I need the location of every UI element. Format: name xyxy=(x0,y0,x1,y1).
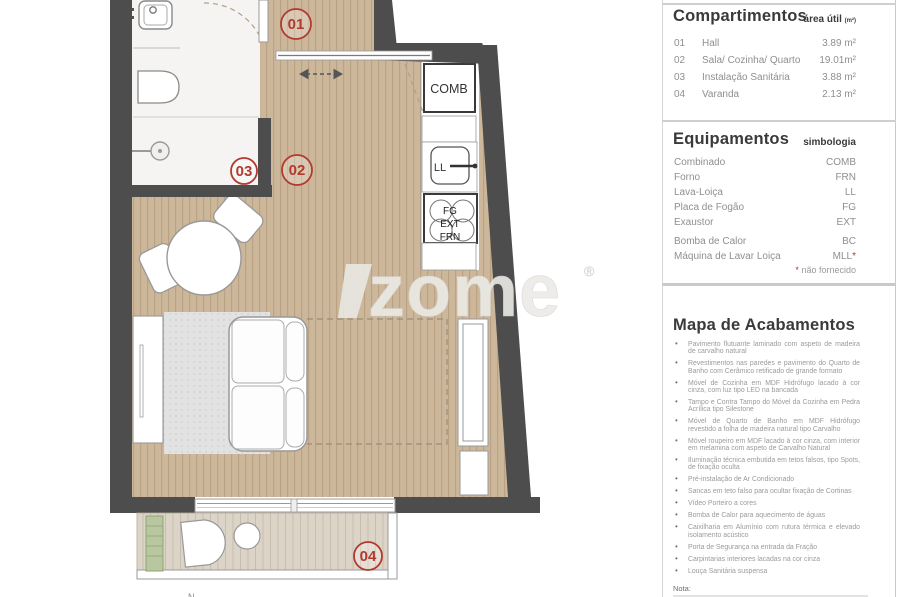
cooktop: FG EXT FRN xyxy=(424,194,477,243)
compartimento-row: 03 Instalação Sanitária 3.88 m² xyxy=(662,72,896,86)
area-util-subtitle: área útil (m²) xyxy=(804,14,856,25)
divider xyxy=(662,120,896,122)
floor-plan-svg: COMB LL FG EXT FRN xyxy=(0,0,660,597)
table-icon xyxy=(167,221,241,295)
acabamento-item: Pavimento flutuante laminado com aspeto … xyxy=(674,341,860,356)
svg-text:01: 01 xyxy=(288,16,305,33)
acabamento-item: Caixilharia em Alumínio com rutura térmi… xyxy=(674,524,860,539)
equipamentos-title: Equipamentos xyxy=(673,130,789,149)
room-badge-03: 03 xyxy=(231,158,257,184)
balcony-railing xyxy=(137,570,397,579)
ll-label: LL xyxy=(434,162,446,174)
divider xyxy=(662,3,896,5)
acabamento-item: Louça Sanitária suspensa xyxy=(674,568,860,575)
acabamentos-title: Mapa de Acabamentos xyxy=(673,316,855,335)
acabamento-item: Móvel roupeiro em MDF lacado à cor cinza… xyxy=(674,438,860,453)
legend-panel: Compartimentos área útil (m²) 01 Hall 3.… xyxy=(662,0,896,597)
frn-label: FRN xyxy=(440,232,461,243)
kitchen-counter: COMB LL FG EXT FRN xyxy=(421,57,479,270)
acabamentos-list: Pavimento flutuante laminado com aspeto … xyxy=(674,341,860,580)
comb-label: COMB xyxy=(430,82,468,96)
balcony-table-icon xyxy=(234,523,260,549)
nota-label: Nota: xyxy=(673,584,691,593)
cutoff-caption: N xyxy=(188,592,195,597)
acabamento-item: Móvel de Quarto de Banho em MDF Hidrófug… xyxy=(674,418,860,433)
equipamento-row: Combinado COMB xyxy=(662,157,896,170)
equipamentos-footnote: * não fornecido xyxy=(795,265,856,275)
acabamento-item: Carpintarias interiores lacadas na cor c… xyxy=(674,556,860,563)
equipamento-row: Placa de Fogão FG xyxy=(662,202,896,215)
room-badge-02: 02 xyxy=(282,155,312,185)
acabamento-item: Pré-instalação de Ar Condicionado xyxy=(674,476,860,483)
equipamento-row: Bomba de Calor BC xyxy=(662,236,896,249)
fg-label: FG xyxy=(443,206,457,217)
acabamento-item: Móvel de Cozinha em MDF Hidrófugo lacado… xyxy=(674,380,860,395)
ext-label: EXT xyxy=(440,219,459,230)
svg-text:02: 02 xyxy=(289,162,306,179)
equipamento-row: Exaustor EXT xyxy=(662,217,896,230)
area-unit: (m²) xyxy=(845,18,856,24)
room-badge-04: 04 xyxy=(354,542,382,570)
floorplan-page: { "colors": { "wall": "#4d4d4d", "wood_f… xyxy=(0,0,900,597)
acabamento-item: Revestimentos nas paredes e pavimento do… xyxy=(674,360,860,375)
plant-box-icon xyxy=(146,516,163,571)
equipamento-row: Forno FRN xyxy=(662,172,896,185)
side-window xyxy=(458,319,488,495)
svg-text:03: 03 xyxy=(236,163,253,180)
acabamento-item: Sancas em teto falso para ocultar fixaçã… xyxy=(674,488,860,495)
simbologia-subtitle: simbologia xyxy=(803,137,856,148)
acabamento-item: Tampo e Contra Tampo do Móvel da Cozinha… xyxy=(674,399,860,414)
wardrobe-handle xyxy=(140,345,143,417)
bottom-window-band xyxy=(195,499,395,512)
acabamento-item: Bomba de Calor para aquecimento de águas xyxy=(674,512,860,519)
svg-text:04: 04 xyxy=(360,548,377,565)
toilet-icon xyxy=(138,71,179,103)
compartimento-row: 02 Sala/ Cozinha/ Quarto 19.01m² xyxy=(662,55,896,69)
room-badge-01: 01 xyxy=(281,9,311,39)
watermark-text: zome xyxy=(368,249,561,332)
sink-ll: LL xyxy=(422,142,477,192)
acabamento-item: Iluminação técnica embutida em tetos fal… xyxy=(674,457,860,472)
equipamento-row: Lava-Loiça LL xyxy=(662,187,896,200)
zome-watermark: zome ® xyxy=(338,249,595,332)
watermark-reg-icon: ® xyxy=(584,263,595,279)
bathroom xyxy=(128,0,260,185)
equipamento-row: Máquina de Lavar Loiça MLL* xyxy=(662,251,896,264)
wardrobe xyxy=(133,316,163,443)
compartimento-row: 04 Varanda 2.13 m² xyxy=(662,89,896,103)
compartimento-row: 01 Hall 3.89 m² xyxy=(662,38,896,52)
divider xyxy=(662,283,896,286)
compartimentos-title: Compartimentos xyxy=(673,7,807,26)
acabamento-item: Porta de Segurança na entrada da Fração xyxy=(674,544,860,551)
acabamento-item: Vídeo Porteiro a cores xyxy=(674,500,860,507)
